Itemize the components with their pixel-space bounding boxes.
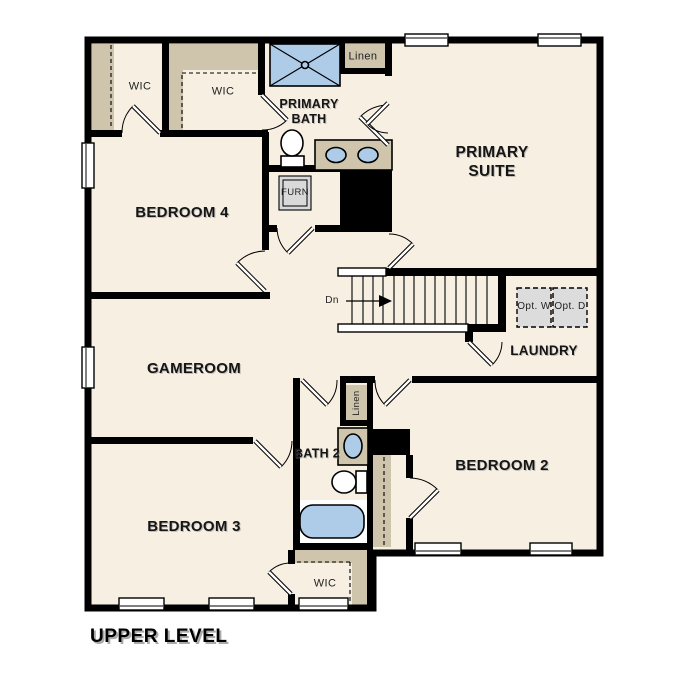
primary-vanity [315,140,392,170]
window [209,598,254,610]
window [415,543,461,555]
optional-washer-label: Opt. W [517,301,551,313]
primary-toilet [281,130,304,167]
window [530,543,572,555]
closet-label-wic-2: WIC [212,85,235,98]
room-label-primary-suite: PRIMARY SUITE [432,144,552,182]
window [82,143,94,188]
room-label-bedroom-3: BEDROOM 3 [147,518,241,536]
room-label-primary-bath: PRIMARY BATH [267,97,351,128]
shower [270,44,340,86]
bath2-toilet [332,471,367,493]
window [538,34,581,46]
window [119,598,164,610]
furnace-label: FURN [281,187,309,199]
room-label-laundry: LAUNDRY [510,343,578,359]
room-label-bedroom-2: BEDROOM 2 [455,457,549,475]
room-label-bedroom-4: BEDROOM 4 [135,204,229,222]
window [82,347,94,388]
bathtub [300,505,364,538]
optional-dryer-label: Opt. D [553,301,587,313]
room-label-bath-2: BATH 2 [290,446,344,461]
plan-title: UPPER LEVEL [90,626,227,648]
window [405,34,448,46]
closet-label-wic-1: WIC [129,80,152,93]
closet-label-linen-1: Linen [349,50,378,63]
stair-rail-bottom [338,324,468,332]
closet-label-linen-2: Linen [351,390,363,415]
floorplan-page: PRIMARY SUITE PRIMARY BATH BEDROOM 4 GAM… [0,0,687,687]
room-label-gameroom: GAMEROOM [147,360,241,378]
stairs-down-label: Dn [325,295,339,307]
closet-label-wic-3: WIC [314,577,337,590]
window [299,598,348,610]
stair-rail-top [338,268,386,276]
